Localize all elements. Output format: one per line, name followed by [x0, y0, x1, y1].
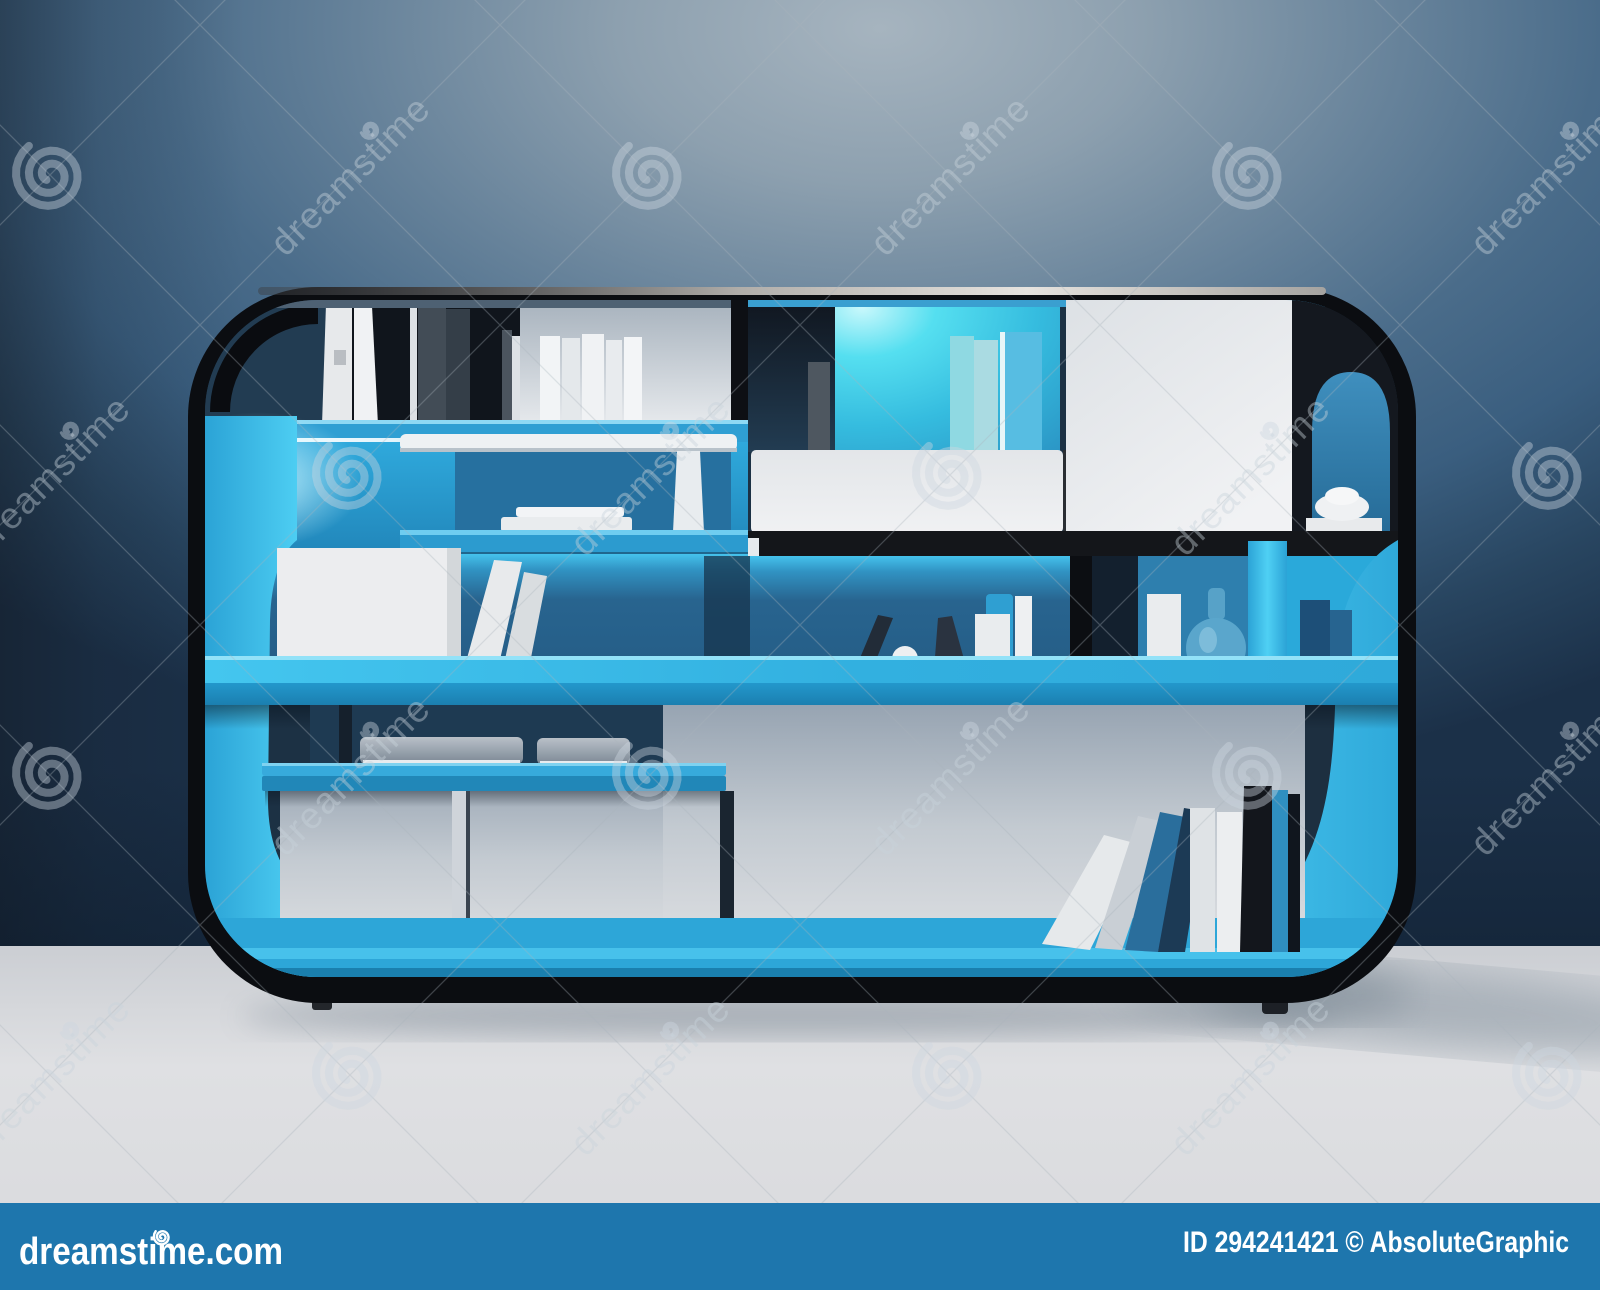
- svg-text:ID 294241421 © AbsoluteGraphic: ID 294241421 © AbsoluteGraphic: [1183, 1226, 1569, 1259]
- svg-text:dreamstime.com: dreamstime.com: [19, 1231, 283, 1273]
